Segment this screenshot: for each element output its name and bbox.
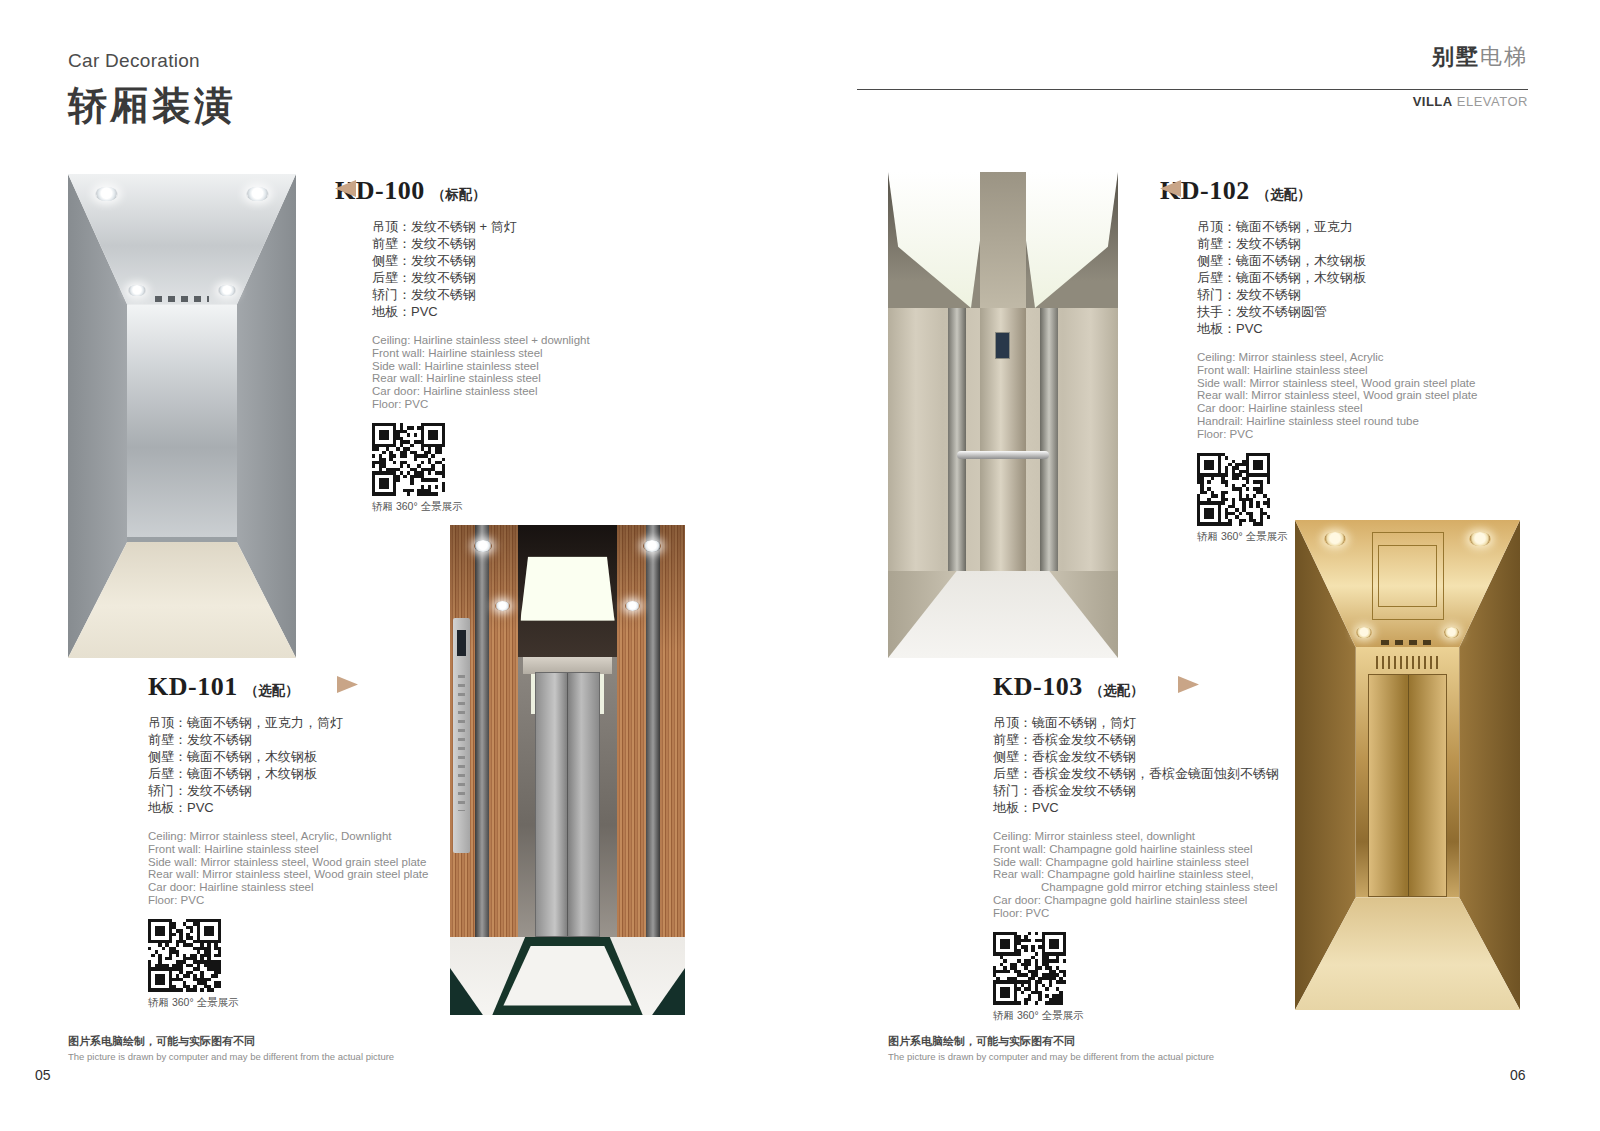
mirror-strip <box>646 525 660 937</box>
ceiling-light-panel <box>888 172 989 308</box>
qr-code <box>993 932 1066 1005</box>
wood-pillar <box>617 525 646 937</box>
brand-en-bold: VILLA <box>1413 94 1453 109</box>
downlight-icon <box>495 601 510 611</box>
elevator-rendering-kd100 <box>68 174 296 658</box>
cab-ceiling <box>888 172 1118 308</box>
spec-line: Side wall: Hairline stainless steel <box>372 360 695 373</box>
variant-label: （选配） <box>1257 187 1311 202</box>
qr-code <box>148 919 221 992</box>
brand-title-zh: 别墅电梯 <box>1128 42 1528 72</box>
disclaimer-en: The picture is drawn by computer and may… <box>68 1051 394 1062</box>
downlight-icon <box>1356 627 1372 638</box>
page-subtitle-en: Car Decoration <box>68 50 236 72</box>
product-block-kd100: KD-100（标配） 吊顶：发纹不锈钢 + 筒灯前壁：发纹不锈钢侧壁：发纹不锈钢… <box>335 176 695 514</box>
specs-zh-list: 吊顶：发纹不锈钢 + 筒灯前壁：发纹不锈钢侧壁：发纹不锈钢后壁：发纹不锈钢轿门：… <box>372 218 695 320</box>
spec-line: Car door: Hairline stainless steel <box>372 385 695 398</box>
page-number-right: 06 <box>1510 1067 1526 1083</box>
wood-pillar <box>489 525 518 937</box>
spec-line: Side wall: Mirror stainless steel, Wood … <box>1197 377 1520 390</box>
spec-line: 侧壁：发纹不锈钢 <box>372 252 695 269</box>
brand-zh-bold: 别墅 <box>1432 44 1480 69</box>
disclaimer-en: The picture is drawn by computer and may… <box>888 1051 1214 1062</box>
elevator-rendering-kd101 <box>450 525 685 1015</box>
etched-pattern <box>1376 656 1439 669</box>
spec-line: 后壁：镜面不锈钢，木纹钢板 <box>1197 269 1520 286</box>
disclaimer-zh: 图片系电脑绘制，可能与实际图有不同 <box>68 1034 394 1049</box>
qr-caption: 轿厢 360° 全景展示 <box>372 500 695 514</box>
spec-line: Rear wall: Hairline stainless steel <box>372 372 695 385</box>
ceiling-pattern <box>1372 532 1444 620</box>
ceiling-center-panel <box>980 172 1026 308</box>
qr-code <box>372 423 445 496</box>
brand-title-en: VILLA ELEVATOR <box>1128 94 1528 109</box>
specs-en-list: Ceiling: Mirror stainless steel, Acrylic… <box>1197 351 1520 441</box>
cab-rear-wall <box>127 305 236 542</box>
downlight-icon <box>246 187 269 202</box>
page-number-left: 05 <box>35 1067 51 1083</box>
spec-line: 轿门：发纹不锈钢 <box>372 286 695 303</box>
mirror-strip <box>1040 308 1058 570</box>
spec-line: Front wall: Hairline stainless steel <box>372 347 695 360</box>
product-block-kd102: KD-102（选配） 吊顶：镜面不锈钢，亚克力前壁：发纹不锈钢侧壁：镜面不锈钢，… <box>1160 176 1520 544</box>
downlight-icon <box>1469 532 1490 546</box>
spec-line: 吊顶：发纹不锈钢 + 筒灯 <box>372 218 695 235</box>
control-panel <box>453 618 469 853</box>
model-label: KD-103 <box>993 672 1083 701</box>
specs-zh-list: 吊顶：镜面不锈钢，亚克力前壁：发纹不锈钢侧壁：镜面不锈钢，木纹钢板后壁：镜面不锈… <box>1197 218 1520 337</box>
spec-line: 轿门：发纹不锈钢 <box>1197 286 1520 303</box>
spec-line: Car door: Hairline stainless steel <box>1197 402 1520 415</box>
model-label: KD-101 <box>148 672 238 701</box>
cab-floor <box>450 937 685 1015</box>
spec-line: 地板：PVC <box>1197 320 1520 337</box>
brand-en-light: ELEVATOR <box>1453 94 1528 109</box>
spec-line: 前壁：发纹不锈钢 <box>1197 235 1520 252</box>
specs-en-list: Ceiling: Hairline stainless steel + down… <box>372 334 695 411</box>
spec-line: 侧壁：镜面不锈钢，木纹钢板 <box>1197 252 1520 269</box>
spec-line: Rear wall: Mirror stainless steel, Wood … <box>1197 389 1520 402</box>
variant-label: （选配） <box>245 683 299 698</box>
ceiling-light-panel <box>1017 172 1118 308</box>
cab-vent <box>1381 640 1435 645</box>
variant-label: （选配） <box>1090 683 1144 698</box>
downlight-icon <box>1324 532 1345 546</box>
spec-line: Floor: PVC <box>372 398 695 411</box>
spec-line: 地板：PVC <box>372 303 695 320</box>
disclaimer-right: 图片系电脑绘制，可能与实际图有不同 The picture is drawn b… <box>888 1034 1214 1062</box>
mirror-strip <box>475 525 489 937</box>
page-title: Car Decoration 轿厢装潢 <box>68 50 236 133</box>
downlight-icon <box>95 187 118 202</box>
ceiling-light-panel <box>521 557 615 621</box>
spec-line: Ceiling: Mirror stainless steel, Acrylic <box>1197 351 1520 364</box>
cab-skirting <box>127 537 236 542</box>
spec-line: Front wall: Hairline stainless steel <box>1197 364 1520 377</box>
handrail <box>957 451 1049 458</box>
brand-zh-light: 电梯 <box>1480 44 1528 69</box>
qr-caption: 轿厢 360° 全景展示 <box>993 1009 1353 1023</box>
header-divider <box>857 89 1528 90</box>
disclaimer-left: 图片系电脑绘制，可能与实际图有不同 The picture is drawn b… <box>68 1034 394 1062</box>
mirror-strip <box>948 308 966 570</box>
car-door <box>1368 674 1447 897</box>
spec-line: 吊顶：镜面不锈钢，亚克力 <box>1197 218 1520 235</box>
variant-label: （标配） <box>432 187 486 202</box>
spec-line: Handrail: Hairline stainless steel round… <box>1197 415 1520 428</box>
spec-line: 扶手：发纹不锈钢圆管 <box>1197 303 1520 320</box>
product-model-title: KD-100（标配） <box>335 176 695 206</box>
spec-line: 前壁：发纹不锈钢 <box>372 235 695 252</box>
car-door <box>535 672 601 937</box>
spec-line: 后壁：发纹不锈钢 <box>372 269 695 286</box>
page-title-zh: 轿厢装潢 <box>68 79 236 133</box>
floor-corner-tile <box>450 968 483 1015</box>
floor-corner-tile <box>652 968 685 1015</box>
disclaimer-zh: 图片系电脑绘制，可能与实际图有不同 <box>888 1034 1214 1049</box>
spec-line: Floor: PVC <box>1197 428 1520 441</box>
elevator-rendering-kd103 <box>1295 520 1520 1010</box>
cab-vent <box>155 296 210 301</box>
spec-line: Ceiling: Hairline stainless steel + down… <box>372 334 695 347</box>
downlight-icon <box>1444 627 1460 638</box>
product-model-title: KD-102（选配） <box>1160 176 1520 206</box>
cab-display <box>995 332 1010 359</box>
elevator-rendering-kd102 <box>888 172 1118 658</box>
qr-code <box>1197 453 1270 526</box>
